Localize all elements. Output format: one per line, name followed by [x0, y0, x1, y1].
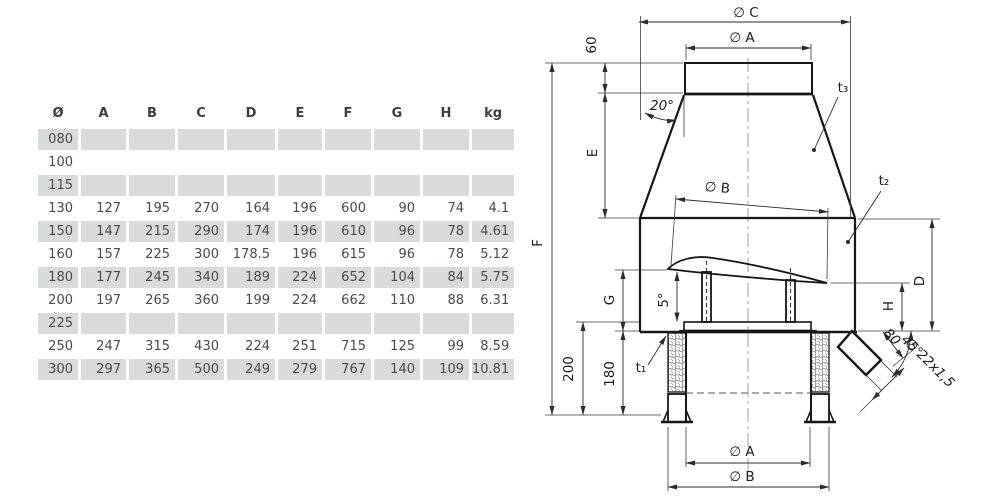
- dim-label-t1: t₁: [636, 360, 647, 376]
- dim-label-f: F: [530, 239, 546, 247]
- mounting-plate: [684, 322, 811, 331]
- hood-wall-right: [813, 95, 855, 218]
- dimension-lines: [552, 22, 932, 487]
- dim-label-200: 200: [561, 356, 577, 382]
- page: ØABCDEFGHkg 0801001151301271952701641966…: [0, 0, 1000, 500]
- extension-lines: [545, 16, 940, 491]
- drain-tube: [838, 331, 881, 375]
- dim-label-tube-spec: ∅ 22x1,5: [902, 335, 958, 391]
- dim-label-oc: ∅ C: [733, 5, 758, 21]
- dim-label-60: 60: [584, 36, 600, 53]
- flange-ring-left: [668, 394, 686, 422]
- flange-ring-right: [811, 394, 829, 422]
- dim-label-h: H: [881, 301, 897, 311]
- dim-label-180: 180: [602, 361, 618, 387]
- rain-deflector: [668, 257, 827, 283]
- dim-label-t2: t₂: [879, 173, 890, 189]
- technical-drawing: ∅ C ∅ A 60 20° E F t₃ t₂ ∅ B G 5° 200 18…: [0, 0, 1000, 500]
- deflector-post-right: [786, 280, 795, 322]
- dim-label-oa-bottom: ∅ A: [729, 444, 755, 460]
- dim-label-ob-bottom: ∅ B: [729, 469, 754, 485]
- insulation-right: [811, 333, 829, 392]
- flange-flares: [663, 410, 834, 422]
- dim-label-g: G: [602, 295, 618, 305]
- dim-label-5deg: 5°: [656, 292, 672, 307]
- dim-label-t3: t₃: [838, 80, 849, 96]
- dim-label-d: D: [912, 276, 928, 286]
- dim-label-ob-mid: ∅ B: [704, 179, 731, 197]
- fan-outline: [640, 63, 881, 422]
- top-outlet-collar: [685, 63, 812, 94]
- dim-label-20deg: 20°: [650, 98, 674, 114]
- insulation-left: [668, 333, 686, 392]
- dimension-labels: ∅ C ∅ A 60 20° E F t₃ t₂ ∅ B G 5° 200 18…: [530, 5, 958, 485]
- dim-label-e: E: [585, 149, 601, 158]
- dim-label-oa-top: ∅ A: [729, 30, 755, 46]
